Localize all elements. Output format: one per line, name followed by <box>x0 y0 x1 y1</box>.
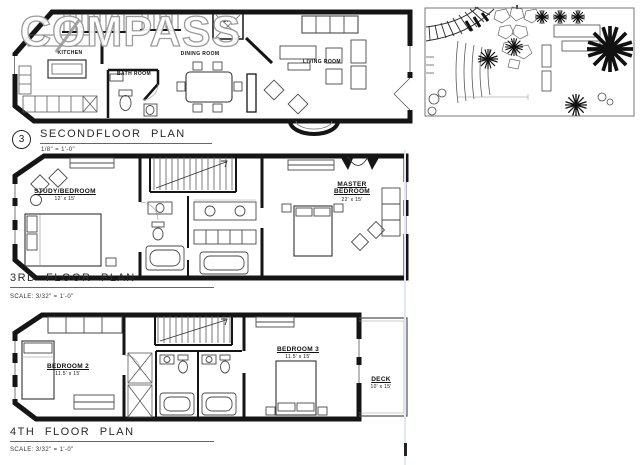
garden-drawing <box>424 5 638 117</box>
floorplan-sheet: KITCHEN BATH ROOM DINING ROOM LIVING ROO… <box>0 0 640 465</box>
room-name: DECK <box>351 376 411 383</box>
room-label-bathroom: BATH ROOM <box>110 71 158 77</box>
room-dims: 10' x 15' <box>351 384 411 390</box>
compass-watermark: COMPASS <box>20 8 241 57</box>
room-dims: 22' x 15' <box>330 197 374 203</box>
room-label-master-bedroom: MASTER BEDROOM 22' x 15' <box>330 181 374 203</box>
second-floor-scale: 1/8" = 1'-0" <box>41 147 75 153</box>
third-floor-scale: SCALE: 3/32" = 1'-0" <box>10 294 74 300</box>
room-label-living: LIVING ROOM <box>292 59 352 65</box>
third-floor-title: 3RD FLOOR PLAN <box>10 272 214 288</box>
room-label-deck: DECK 10' x 15' <box>351 376 411 390</box>
room-name: BEDROOM 3 <box>258 346 338 353</box>
room-name: BEDROOM 2 <box>28 363 108 370</box>
room-name: STUDY/BEDROOM <box>23 188 107 195</box>
second-floor-title: SECONDFLOOR PLAN <box>40 128 212 144</box>
left-windows <box>11 341 19 399</box>
fourth-floor-title: 4TH FLOOR PLAN <box>10 426 214 442</box>
left-windows <box>11 184 19 244</box>
deck-railing <box>359 318 407 416</box>
room-dims: 11.5' x 15' <box>28 371 108 377</box>
fourth-floor-scale: SCALE: 3/32" = 1'-0" <box>10 447 74 453</box>
vertical-guide-line <box>404 150 406 465</box>
room-dims: 12' x 15' <box>23 196 107 202</box>
room-label-study-bedroom: STUDY/BEDROOM 12' x 15' <box>23 188 107 202</box>
room-label-bedroom3: BEDROOM 3 11.5' x 15' <box>258 346 338 360</box>
room-dims: 11.5' x 15' <box>258 354 338 360</box>
room-label-bedroom2: BEDROOM 2 11.5' x 15' <box>28 363 108 377</box>
exterior-walls <box>15 156 406 278</box>
guide-tick-mark <box>404 443 407 456</box>
sheet-marker: 3 <box>12 130 31 149</box>
third-floor-drawing <box>10 152 410 282</box>
room-name: MASTER BEDROOM <box>330 181 374 196</box>
